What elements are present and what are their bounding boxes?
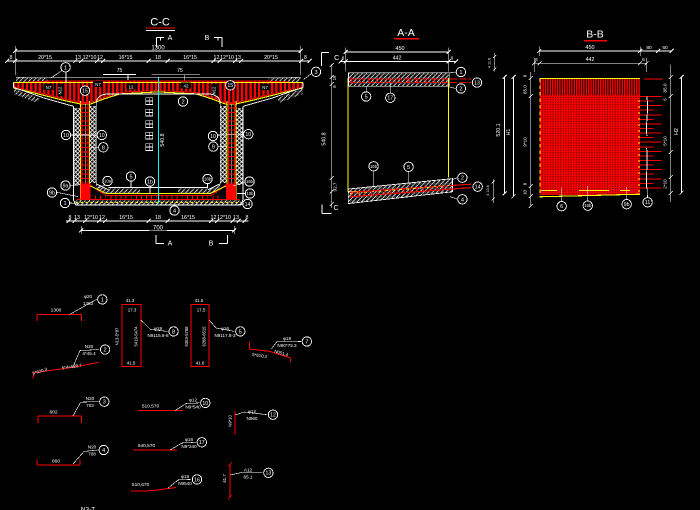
svg-text:5: 5: [407, 165, 410, 171]
svg-text:10: 10: [245, 132, 251, 138]
svg-text:φ16: φ16: [221, 326, 230, 331]
svg-text:φ18: φ18: [283, 336, 292, 341]
svg-text:8: 8: [342, 55, 345, 61]
svg-text:10: 10: [63, 133, 69, 139]
svg-text:16*15: 16*15: [119, 215, 133, 221]
svg-text:5353-5788: 5353-5788: [184, 326, 189, 347]
svg-text:8: 8: [102, 145, 105, 151]
svg-text:16*15: 16*15: [119, 55, 133, 61]
svg-text:8: 8: [69, 215, 72, 221]
svg-text:540.8: 540.8: [160, 133, 166, 146]
svg-text:16b: 16b: [584, 203, 592, 208]
svg-text:660: 660: [52, 458, 60, 464]
svg-text:N7: N7: [262, 85, 268, 90]
svg-text:18: 18: [155, 215, 161, 221]
svg-text:17.5: 17.5: [197, 308, 206, 313]
svg-text:20*15: 20*15: [264, 55, 278, 61]
svg-text:1b: 1b: [147, 179, 153, 185]
svg-text:8: 8: [172, 329, 175, 335]
svg-text:10: 10: [99, 133, 105, 139]
svg-text:10b: 10b: [247, 191, 255, 196]
svg-text:700: 700: [153, 226, 164, 232]
svg-text:4: 4: [102, 448, 105, 454]
svg-text:12*10: 12*10: [84, 215, 98, 221]
svg-text:41.3: 41.3: [126, 298, 135, 303]
svg-text:9*10: 9*10: [522, 137, 527, 147]
svg-text:A-A: A-A: [397, 27, 415, 39]
svg-text:13: 13: [266, 471, 272, 477]
svg-text:φ12: φ12: [248, 409, 257, 414]
svg-text:A: A: [168, 241, 173, 248]
svg-text:1303: 1303: [83, 301, 94, 306]
svg-text:φ20: φ20: [84, 294, 93, 299]
svg-text:N9117.8-3: N9117.8-3: [214, 333, 236, 338]
svg-text:520.1: 520.1: [496, 123, 502, 136]
svg-text:N20: N20: [88, 445, 97, 450]
svg-text:N9*10: N9*10: [227, 415, 232, 427]
svg-text:7: 7: [305, 340, 308, 346]
svg-text:N960: N960: [247, 416, 258, 421]
svg-text:80: 80: [646, 45, 652, 51]
svg-text:4 13.6: 4 13.6: [486, 185, 490, 196]
svg-text:φ12: φ12: [189, 397, 198, 402]
svg-text:φ16: φ16: [185, 437, 194, 442]
svg-text:9b: 9b: [49, 190, 55, 196]
svg-text:6: 6: [451, 55, 454, 61]
svg-text:12: 12: [270, 413, 276, 419]
svg-text:13: 13: [233, 215, 239, 221]
svg-text:10: 10: [202, 401, 208, 407]
svg-text:A: A: [168, 35, 173, 42]
svg-text:450: 450: [395, 46, 404, 52]
svg-text:540.8: 540.8: [321, 132, 327, 145]
svg-text:3: 3: [103, 400, 106, 406]
svg-text:8: 8: [246, 215, 249, 221]
svg-text:65.1: 65.1: [244, 474, 253, 479]
svg-text:41.6: 41.6: [196, 361, 205, 366]
svg-text:16b: 16b: [246, 179, 254, 184]
svg-text:5: 5: [129, 175, 132, 181]
svg-text:N20: N20: [86, 396, 95, 401]
svg-text:8: 8: [304, 55, 307, 61]
svg-text:1300: 1300: [151, 46, 165, 52]
svg-text:9b: 9b: [624, 202, 630, 208]
svg-text:4: 4: [173, 209, 176, 215]
svg-text:N9540: N9540: [178, 481, 192, 486]
svg-text:5*10: 5*10: [663, 136, 668, 146]
svg-text:10: 10: [210, 134, 216, 140]
svg-text:6: 6: [642, 57, 645, 63]
svg-text:75: 75: [177, 68, 183, 74]
svg-text:2*10: 2*10: [663, 179, 668, 189]
svg-text:17.3: 17.3: [128, 308, 137, 313]
svg-text:16: 16: [194, 477, 200, 483]
svg-text:13: 13: [474, 80, 480, 86]
svg-text:19: 19: [332, 75, 337, 80]
svg-text:2: 2: [461, 176, 464, 182]
svg-text:16b: 16b: [204, 177, 212, 182]
svg-text:2: 2: [104, 348, 107, 354]
svg-text:5: 5: [365, 95, 368, 101]
svg-text:14: 14: [245, 202, 251, 208]
svg-text:41.5: 41.5: [127, 361, 136, 366]
svg-text:6: 6: [535, 57, 538, 63]
svg-text:H1: H1: [506, 129, 512, 136]
svg-text:6: 6: [560, 204, 563, 210]
svg-text:13: 13: [235, 55, 241, 61]
svg-text:510,570: 510,570: [142, 404, 160, 410]
svg-text:15: 15: [227, 83, 233, 89]
svg-text:85.0: 85.0: [663, 83, 668, 92]
svg-text:10: 10: [522, 190, 527, 195]
svg-text:12: 12: [97, 55, 103, 61]
svg-text:B-B: B-B: [586, 29, 604, 41]
svg-text:3: 3: [314, 70, 317, 76]
svg-text:510,670: 510,670: [132, 482, 150, 488]
svg-text:708: 708: [88, 452, 96, 457]
svg-text:12: 12: [214, 55, 220, 61]
svg-text:17: 17: [387, 96, 393, 102]
svg-text:C-C: C-C: [150, 17, 170, 29]
svg-text:12: 12: [128, 85, 134, 90]
svg-text:18: 18: [155, 55, 161, 61]
svg-text:41.5: 41.5: [195, 298, 204, 303]
svg-text:5: 5: [239, 329, 242, 335]
svg-text:13: 13: [75, 55, 81, 61]
svg-text:42: 42: [183, 84, 189, 89]
svg-text:16b: 16b: [370, 164, 378, 169]
svg-text:N9115.6-8: N9115.6-8: [147, 333, 169, 338]
svg-text:N90*75.3: N90*75.3: [277, 343, 297, 348]
svg-text:12*10: 12*10: [217, 215, 231, 221]
svg-text:703: 703: [86, 403, 94, 408]
svg-text:N12: N12: [58, 86, 63, 94]
svg-text:9a: 9a: [63, 183, 69, 189]
svg-text:92.7: 92.7: [333, 182, 338, 191]
svg-text:C: C: [333, 205, 338, 212]
svg-text:N3-T: N3-T: [81, 507, 95, 510]
svg-text:N7: N7: [46, 85, 52, 90]
svg-text:2: 2: [181, 100, 184, 106]
svg-text:75: 75: [117, 68, 123, 74]
svg-text:17: 17: [199, 440, 205, 446]
svg-text:φ19: φ19: [154, 326, 163, 331]
svg-text:6288-6515: 6288-6515: [202, 326, 207, 347]
svg-text:442: 442: [393, 55, 402, 61]
svg-text:4: 4: [461, 197, 464, 203]
svg-text:1: 1: [63, 201, 66, 207]
svg-text:4 11.6: 4 11.6: [488, 58, 492, 68]
svg-text:16*15: 16*15: [181, 215, 195, 221]
svg-text:N9*540: N9*540: [185, 404, 201, 409]
svg-text:12: 12: [99, 215, 105, 221]
svg-text:442: 442: [586, 57, 595, 63]
svg-text:20*15: 20*15: [38, 55, 52, 61]
svg-text:2: 2: [459, 87, 462, 93]
svg-text:N9*240: N9*240: [181, 444, 197, 449]
svg-text:10a: 10a: [104, 179, 112, 184]
svg-text:8: 8: [10, 55, 13, 61]
svg-text:9: 9: [212, 145, 215, 151]
svg-text:N20: N20: [85, 344, 94, 349]
svg-text:13: 13: [74, 215, 80, 221]
svg-text:85.0: 85.0: [522, 85, 527, 94]
svg-text:12*10: 12*10: [220, 55, 234, 61]
svg-text:B: B: [209, 241, 214, 248]
svg-text:C: C: [334, 55, 339, 62]
svg-text:H2: H2: [674, 128, 680, 135]
svg-text:12: 12: [211, 215, 217, 221]
svg-text:1: 1: [64, 65, 67, 71]
svg-text:11: 11: [645, 200, 650, 206]
svg-text:1: 1: [101, 297, 104, 303]
svg-text:60: 60: [662, 45, 668, 51]
svg-text:602: 602: [49, 410, 57, 416]
svg-text:450: 450: [585, 45, 594, 51]
svg-text:540,570: 540,570: [138, 443, 156, 449]
svg-text:1: 1: [459, 70, 462, 76]
svg-text:B: B: [205, 35, 210, 42]
svg-text:5419-5474: 5419-5474: [134, 326, 139, 347]
svg-text:N12: N12: [212, 86, 217, 94]
svg-text:φ18: φ18: [181, 474, 190, 479]
svg-text:4*45.4: 4*45.4: [82, 351, 96, 356]
svg-text:16*15: 16*15: [183, 55, 197, 61]
svg-text:1300: 1300: [51, 308, 62, 314]
svg-text:A12: A12: [244, 467, 253, 472]
svg-text:41.7: 41.7: [222, 474, 227, 483]
svg-text:N7: N7: [95, 82, 101, 87]
svg-text:14: 14: [475, 185, 481, 191]
svg-text:12*10: 12*10: [83, 55, 97, 61]
svg-text:15: 15: [82, 89, 88, 95]
svg-text:N13-5*87: N13-5*87: [115, 327, 120, 345]
